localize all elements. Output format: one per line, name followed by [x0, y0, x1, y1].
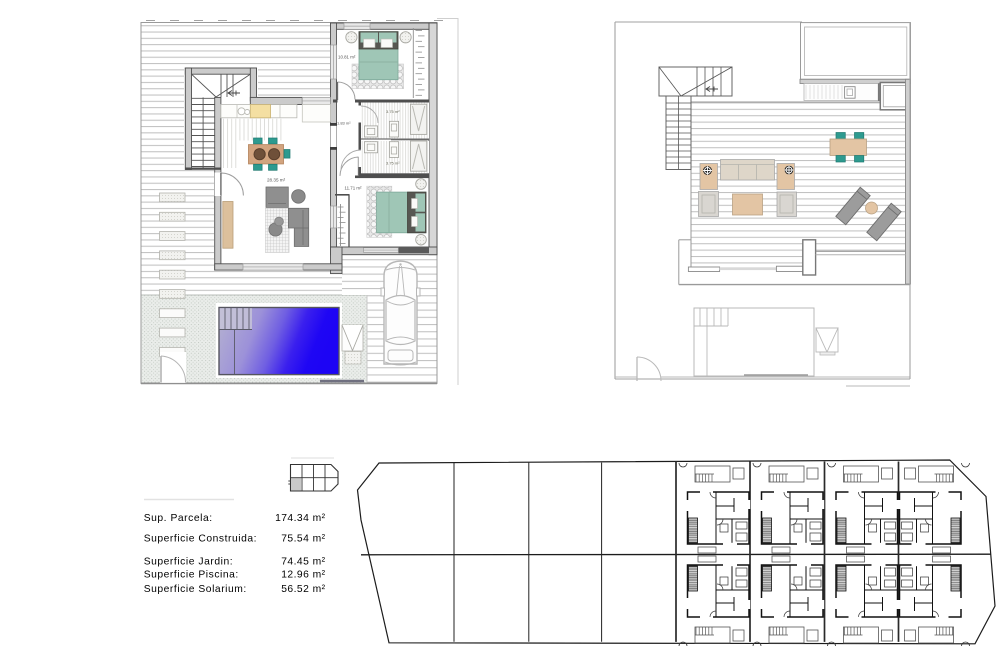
- svg-text:Sup. Parcela:: Sup. Parcela:: [144, 513, 213, 524]
- svg-text:28.35 m²: 28.35 m²: [267, 178, 286, 183]
- svg-text:Superficie Construida:: Superficie Construida:: [144, 534, 257, 545]
- svg-text:10.81 m²: 10.81 m²: [338, 55, 356, 60]
- svg-text:56.52 m²: 56.52 m²: [281, 584, 325, 595]
- svg-text:Superficie Piscina:: Superficie Piscina:: [144, 569, 239, 580]
- svg-text:12.96 m²: 12.96 m²: [281, 569, 325, 580]
- svg-text:1.83 m²: 1.83 m²: [337, 121, 351, 126]
- svg-text:Superficie Jardin:: Superficie Jardin:: [144, 557, 233, 568]
- svg-text:174.34 m²: 174.34 m²: [275, 513, 326, 524]
- svg-text:11.71 m²: 11.71 m²: [345, 186, 363, 191]
- svg-text:3.75 m²: 3.75 m²: [386, 161, 400, 166]
- svg-text:74.45 m²: 74.45 m²: [281, 557, 325, 568]
- svg-text:75.54 m²: 75.54 m²: [281, 534, 325, 545]
- svg-text:Superficie Solarium:: Superficie Solarium:: [144, 584, 247, 595]
- svg-text:3.75 m²: 3.75 m²: [386, 109, 400, 114]
